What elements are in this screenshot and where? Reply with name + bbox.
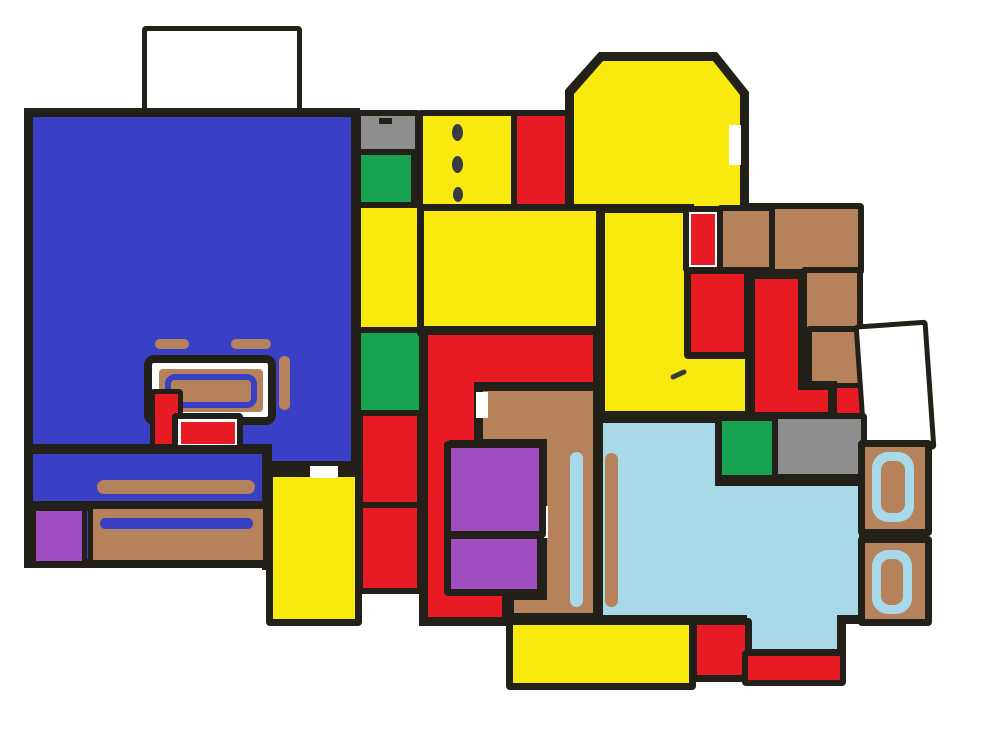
yellow-room-bottom-left <box>266 470 362 626</box>
bench-bar <box>97 480 255 494</box>
red-strip <box>691 214 715 265</box>
bath-fixture-1-center <box>881 461 905 513</box>
yellow-cell-door-dots <box>417 110 518 213</box>
brown-counter-bottom <box>88 504 268 565</box>
red-cell-top <box>511 110 574 213</box>
bath-fixture-2-center <box>881 559 903 605</box>
bath-fixture-2 <box>872 550 912 614</box>
door-dot-2 <box>452 156 463 173</box>
hatched-area-top <box>142 26 302 116</box>
brown-room-1 <box>717 205 776 273</box>
green-cell-mid-left <box>355 327 425 416</box>
pool-lane-stripe <box>605 453 618 607</box>
brown-room-door-gap <box>476 392 488 418</box>
brown-room-2 <box>769 203 864 275</box>
door-gap-yellow-room <box>310 466 338 478</box>
floor-plan-canvas <box>0 0 985 749</box>
purple-mat-bottom-left <box>31 506 87 566</box>
door-dot-3 <box>453 187 463 202</box>
yellow-strip-bottom <box>506 618 696 690</box>
gray-cell-pool <box>772 413 867 480</box>
purple-room-2 <box>444 532 544 596</box>
red-cell-upper-left <box>357 410 423 508</box>
green-cell-top <box>355 149 417 209</box>
yellow-room-center <box>417 204 608 337</box>
red-room-mid-right <box>684 267 751 359</box>
yellow-cell-mid-left <box>355 202 425 333</box>
sunroom-window-notch <box>729 125 741 165</box>
door-dot-1 <box>452 124 463 141</box>
side-table-red <box>181 422 235 444</box>
hall-lane-stripe <box>570 452 583 607</box>
purple-room-1 <box>444 441 546 538</box>
blue-trim-bar <box>100 518 253 529</box>
chair-strip <box>279 356 290 410</box>
gray-cell-mark <box>379 118 392 124</box>
red-cell-lower-left <box>357 502 423 594</box>
brown-room-3 <box>801 267 863 334</box>
counter-dash-left <box>155 339 189 349</box>
bath-fixture-1 <box>872 452 914 522</box>
red-strip-bottom <box>742 650 846 686</box>
counter-dash-right <box>231 339 271 349</box>
